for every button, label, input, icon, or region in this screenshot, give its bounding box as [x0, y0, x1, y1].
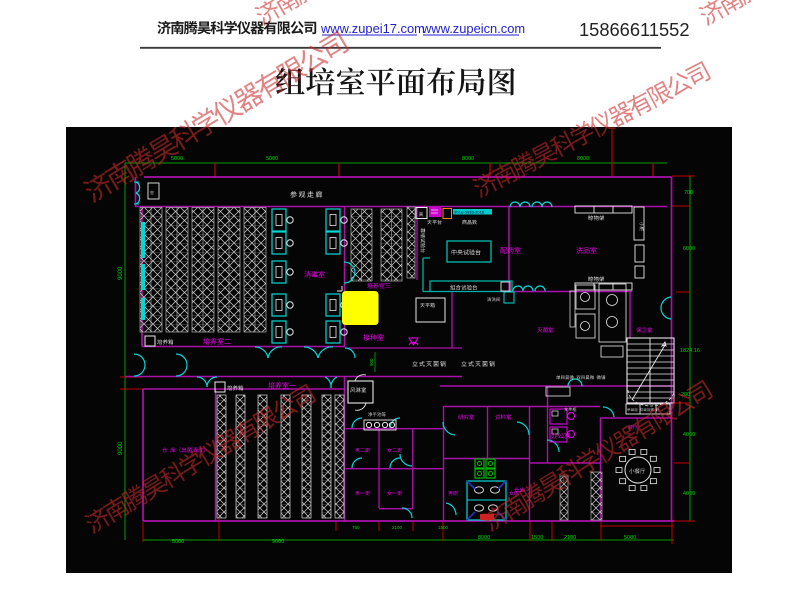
svg-text:9000: 9000 — [272, 539, 284, 545]
svg-text:5000: 5000 — [171, 156, 183, 162]
svg-text:15866611552: 15866611552 — [579, 19, 689, 40]
svg-text:www.zupeicn.com: www.zupeicn.com — [421, 21, 525, 36]
svg-text:2100: 2100 — [564, 535, 576, 541]
svg-text:301U-5933-2016: 301U-5933-2016 — [454, 210, 485, 215]
svg-text:5000: 5000 — [624, 535, 636, 541]
svg-text:4000: 4000 — [683, 432, 695, 438]
svg-text:700: 700 — [684, 190, 693, 196]
svg-text:1500: 1500 — [438, 525, 449, 530]
svg-text:6000: 6000 — [683, 246, 695, 252]
svg-text:8000: 8000 — [462, 156, 474, 162]
svg-text:9000: 9000 — [118, 266, 124, 280]
svg-text:900: 900 — [369, 358, 374, 366]
svg-text:2100: 2100 — [392, 525, 403, 530]
svg-text:8000: 8000 — [478, 535, 490, 541]
svg-text:4000: 4000 — [683, 491, 695, 497]
svg-text:5000: 5000 — [266, 156, 278, 162]
svg-text:9000: 9000 — [118, 441, 124, 455]
svg-text:5000: 5000 — [172, 539, 184, 545]
svg-text:750: 750 — [352, 525, 360, 530]
svg-text:1824.16: 1824.16 — [680, 348, 700, 354]
svg-text:8000: 8000 — [577, 156, 589, 162]
svg-text:1500: 1500 — [531, 535, 543, 541]
